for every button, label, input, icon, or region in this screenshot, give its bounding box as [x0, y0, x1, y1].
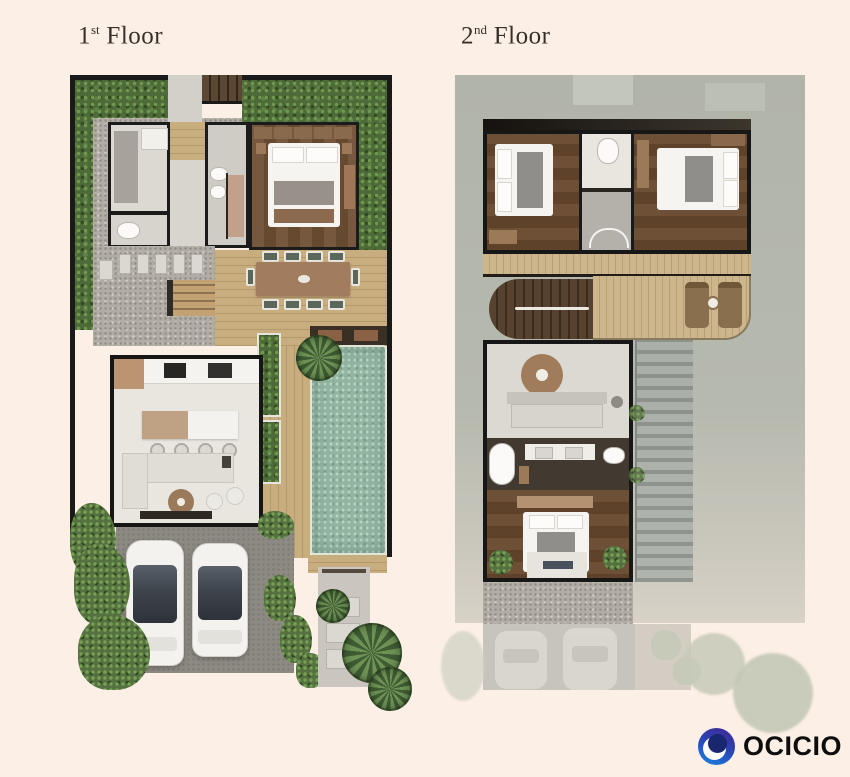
ghost-roof-block [705, 83, 765, 111]
paver [137, 254, 149, 274]
floor1-ordinal: st [91, 22, 100, 37]
sofa-back [507, 392, 607, 404]
floor2-number: 2 [461, 22, 474, 49]
tv-console [140, 511, 212, 519]
shrub-bed [78, 615, 150, 690]
kitchen-island [142, 411, 238, 439]
double-vanity [525, 444, 595, 460]
garden-wall-right [387, 75, 392, 557]
balcony-bench [543, 561, 573, 569]
shrub-bed [264, 575, 296, 621]
entry-gate [202, 75, 242, 104]
bed-throw [274, 209, 334, 223]
car-glass-roof [198, 566, 242, 620]
dining-table [256, 262, 350, 296]
car-hood [198, 630, 242, 644]
ghost-roof-block [573, 75, 633, 105]
ocicio-logo-icon [698, 728, 735, 765]
dining-chair [262, 251, 279, 262]
paver [155, 254, 167, 274]
corner-cabinet [114, 359, 144, 389]
cooktop [164, 363, 186, 378]
dining-chair [306, 251, 323, 262]
side-table [706, 296, 720, 310]
console [517, 496, 593, 508]
floor2-plan [455, 75, 805, 690]
hedge-top-left [75, 80, 168, 118]
sink [535, 447, 553, 459]
ghost-car-glass [503, 649, 539, 663]
paver [173, 254, 185, 274]
pillow [529, 515, 555, 529]
floor1-number: 1 [78, 22, 91, 49]
shower-bench [228, 175, 244, 237]
pillow [272, 147, 304, 163]
rug-center [536, 369, 548, 381]
dining-chair [328, 251, 345, 262]
palm-tree [316, 589, 350, 623]
dining-chair [306, 299, 323, 310]
balcony-walkway [483, 254, 751, 276]
hall-deck-strip [170, 122, 205, 160]
toilet [117, 222, 140, 239]
stair-handrail [515, 307, 589, 310]
bidet [210, 185, 226, 199]
pouf [226, 487, 244, 505]
shrub-bed [258, 511, 294, 539]
ghost-tree [441, 631, 485, 701]
shrub-bed [74, 543, 130, 625]
utility-mat [114, 131, 138, 203]
palm-tree [368, 667, 412, 711]
pillow [557, 515, 583, 529]
bedroom-1 [249, 122, 359, 250]
ghost-car [495, 631, 547, 689]
nightstand-right [342, 143, 352, 154]
floor1-title: 1st Floor [78, 22, 163, 50]
gravel-strip [483, 582, 633, 624]
toilet [603, 447, 625, 464]
hallway [170, 122, 205, 248]
floor-lamp [611, 396, 623, 408]
floor2-title: 2nd Floor [461, 22, 550, 50]
bedroom-balcony [527, 552, 587, 578]
sink [565, 447, 583, 459]
powder-room [108, 212, 170, 248]
car-glass-roof [133, 565, 177, 623]
ghost-tree [733, 653, 813, 733]
pillow [306, 147, 338, 163]
pergola-beam [354, 330, 378, 341]
potted-plant [489, 550, 513, 574]
paver [99, 260, 113, 280]
ghost-shrub [651, 630, 681, 660]
dining-chair [328, 299, 345, 310]
brand-lockup: OCICIO [698, 728, 842, 765]
paver [119, 254, 131, 274]
ghost-car [563, 628, 617, 690]
family-room [483, 340, 633, 438]
floorplan-page: { "page": {"background_color": "#fcefe6"… [0, 0, 850, 777]
bed-runner [274, 181, 334, 205]
floor2-word: Floor [494, 22, 551, 49]
pouf [206, 493, 223, 510]
upper-block-walls [483, 130, 751, 254]
sun-lounger [718, 282, 742, 328]
ghost-plant [629, 467, 645, 483]
island-runner [142, 411, 188, 439]
dining-chair [262, 299, 279, 310]
interior-wall [631, 132, 634, 250]
table-decor [177, 498, 185, 506]
interior-wall [579, 132, 582, 250]
sofa-seat [511, 404, 603, 428]
sofa-pillow [222, 456, 231, 468]
paver [191, 254, 203, 274]
bench [344, 165, 355, 209]
dining-chair [284, 299, 301, 310]
round-rug [521, 354, 563, 396]
kitchen-counter [144, 359, 259, 384]
floor2-ordinal: nd [474, 22, 487, 37]
nightstand-left [256, 143, 266, 154]
bed [268, 143, 340, 227]
palm-tree [296, 335, 342, 381]
brand-name: OCICIO [743, 731, 842, 762]
utility-room [108, 122, 170, 214]
staircase [489, 279, 593, 339]
bath-shelf [519, 466, 529, 484]
sofa-chaise [122, 453, 148, 509]
dining-chair-end [351, 268, 360, 286]
utility-closet [141, 128, 168, 150]
wardrobe [254, 127, 354, 139]
sink-counter [208, 363, 232, 378]
hedge-left-column [75, 115, 93, 330]
dining-chair-end [246, 268, 255, 286]
floor1-plan [70, 75, 392, 690]
bathtub [489, 443, 515, 485]
centerpiece [298, 275, 310, 283]
car-suv [192, 543, 248, 657]
master-bedroom [483, 490, 633, 582]
bathroom-1 [205, 122, 249, 248]
ghost-pergola-slats [635, 340, 693, 582]
gate-line [322, 569, 366, 573]
dining-chair [284, 251, 301, 262]
master-bathroom [483, 438, 633, 490]
ghost-car-glass [572, 646, 608, 662]
ghost-plant [629, 405, 645, 421]
floor1-word: Floor [106, 22, 163, 49]
entry-path [168, 75, 202, 127]
kitchen-living-room [110, 355, 263, 527]
potted-plant [603, 546, 627, 570]
